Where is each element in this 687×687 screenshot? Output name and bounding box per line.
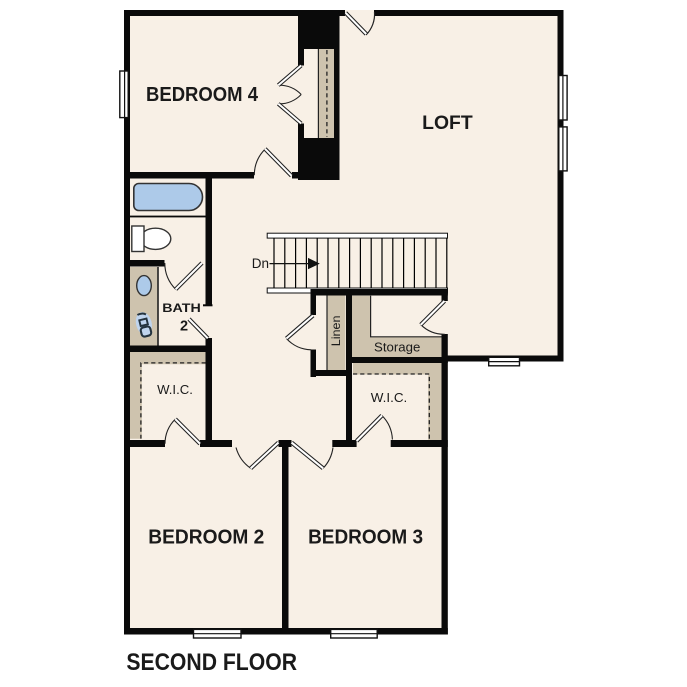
svg-text:BEDROOM 4: BEDROOM 4 [146, 83, 259, 106]
svg-text:LOFT: LOFT [422, 112, 473, 134]
svg-text:Storage: Storage [374, 340, 420, 354]
svg-text:SECOND FLOOR: SECOND FLOOR [126, 649, 297, 676]
svg-text:W.I.C.: W.I.C. [371, 390, 408, 405]
svg-text:BATH: BATH [162, 301, 201, 315]
svg-text:BEDROOM 2: BEDROOM 2 [148, 525, 264, 548]
svg-text:Linen: Linen [329, 316, 343, 347]
svg-text:2: 2 [180, 318, 188, 334]
svg-text:Dn: Dn [252, 256, 269, 271]
svg-text:W.I.C.: W.I.C. [157, 382, 193, 397]
svg-text:BEDROOM 3: BEDROOM 3 [308, 525, 423, 548]
